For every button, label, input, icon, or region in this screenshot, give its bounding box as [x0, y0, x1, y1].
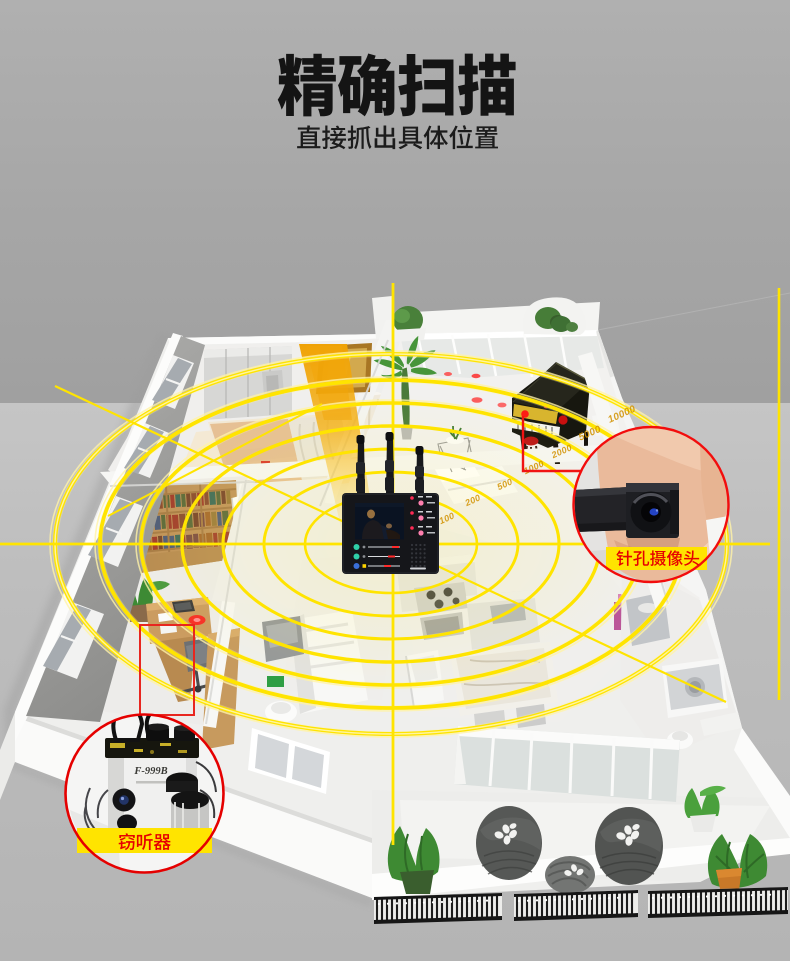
svg-text:F-999B: F-999B — [133, 766, 167, 777]
